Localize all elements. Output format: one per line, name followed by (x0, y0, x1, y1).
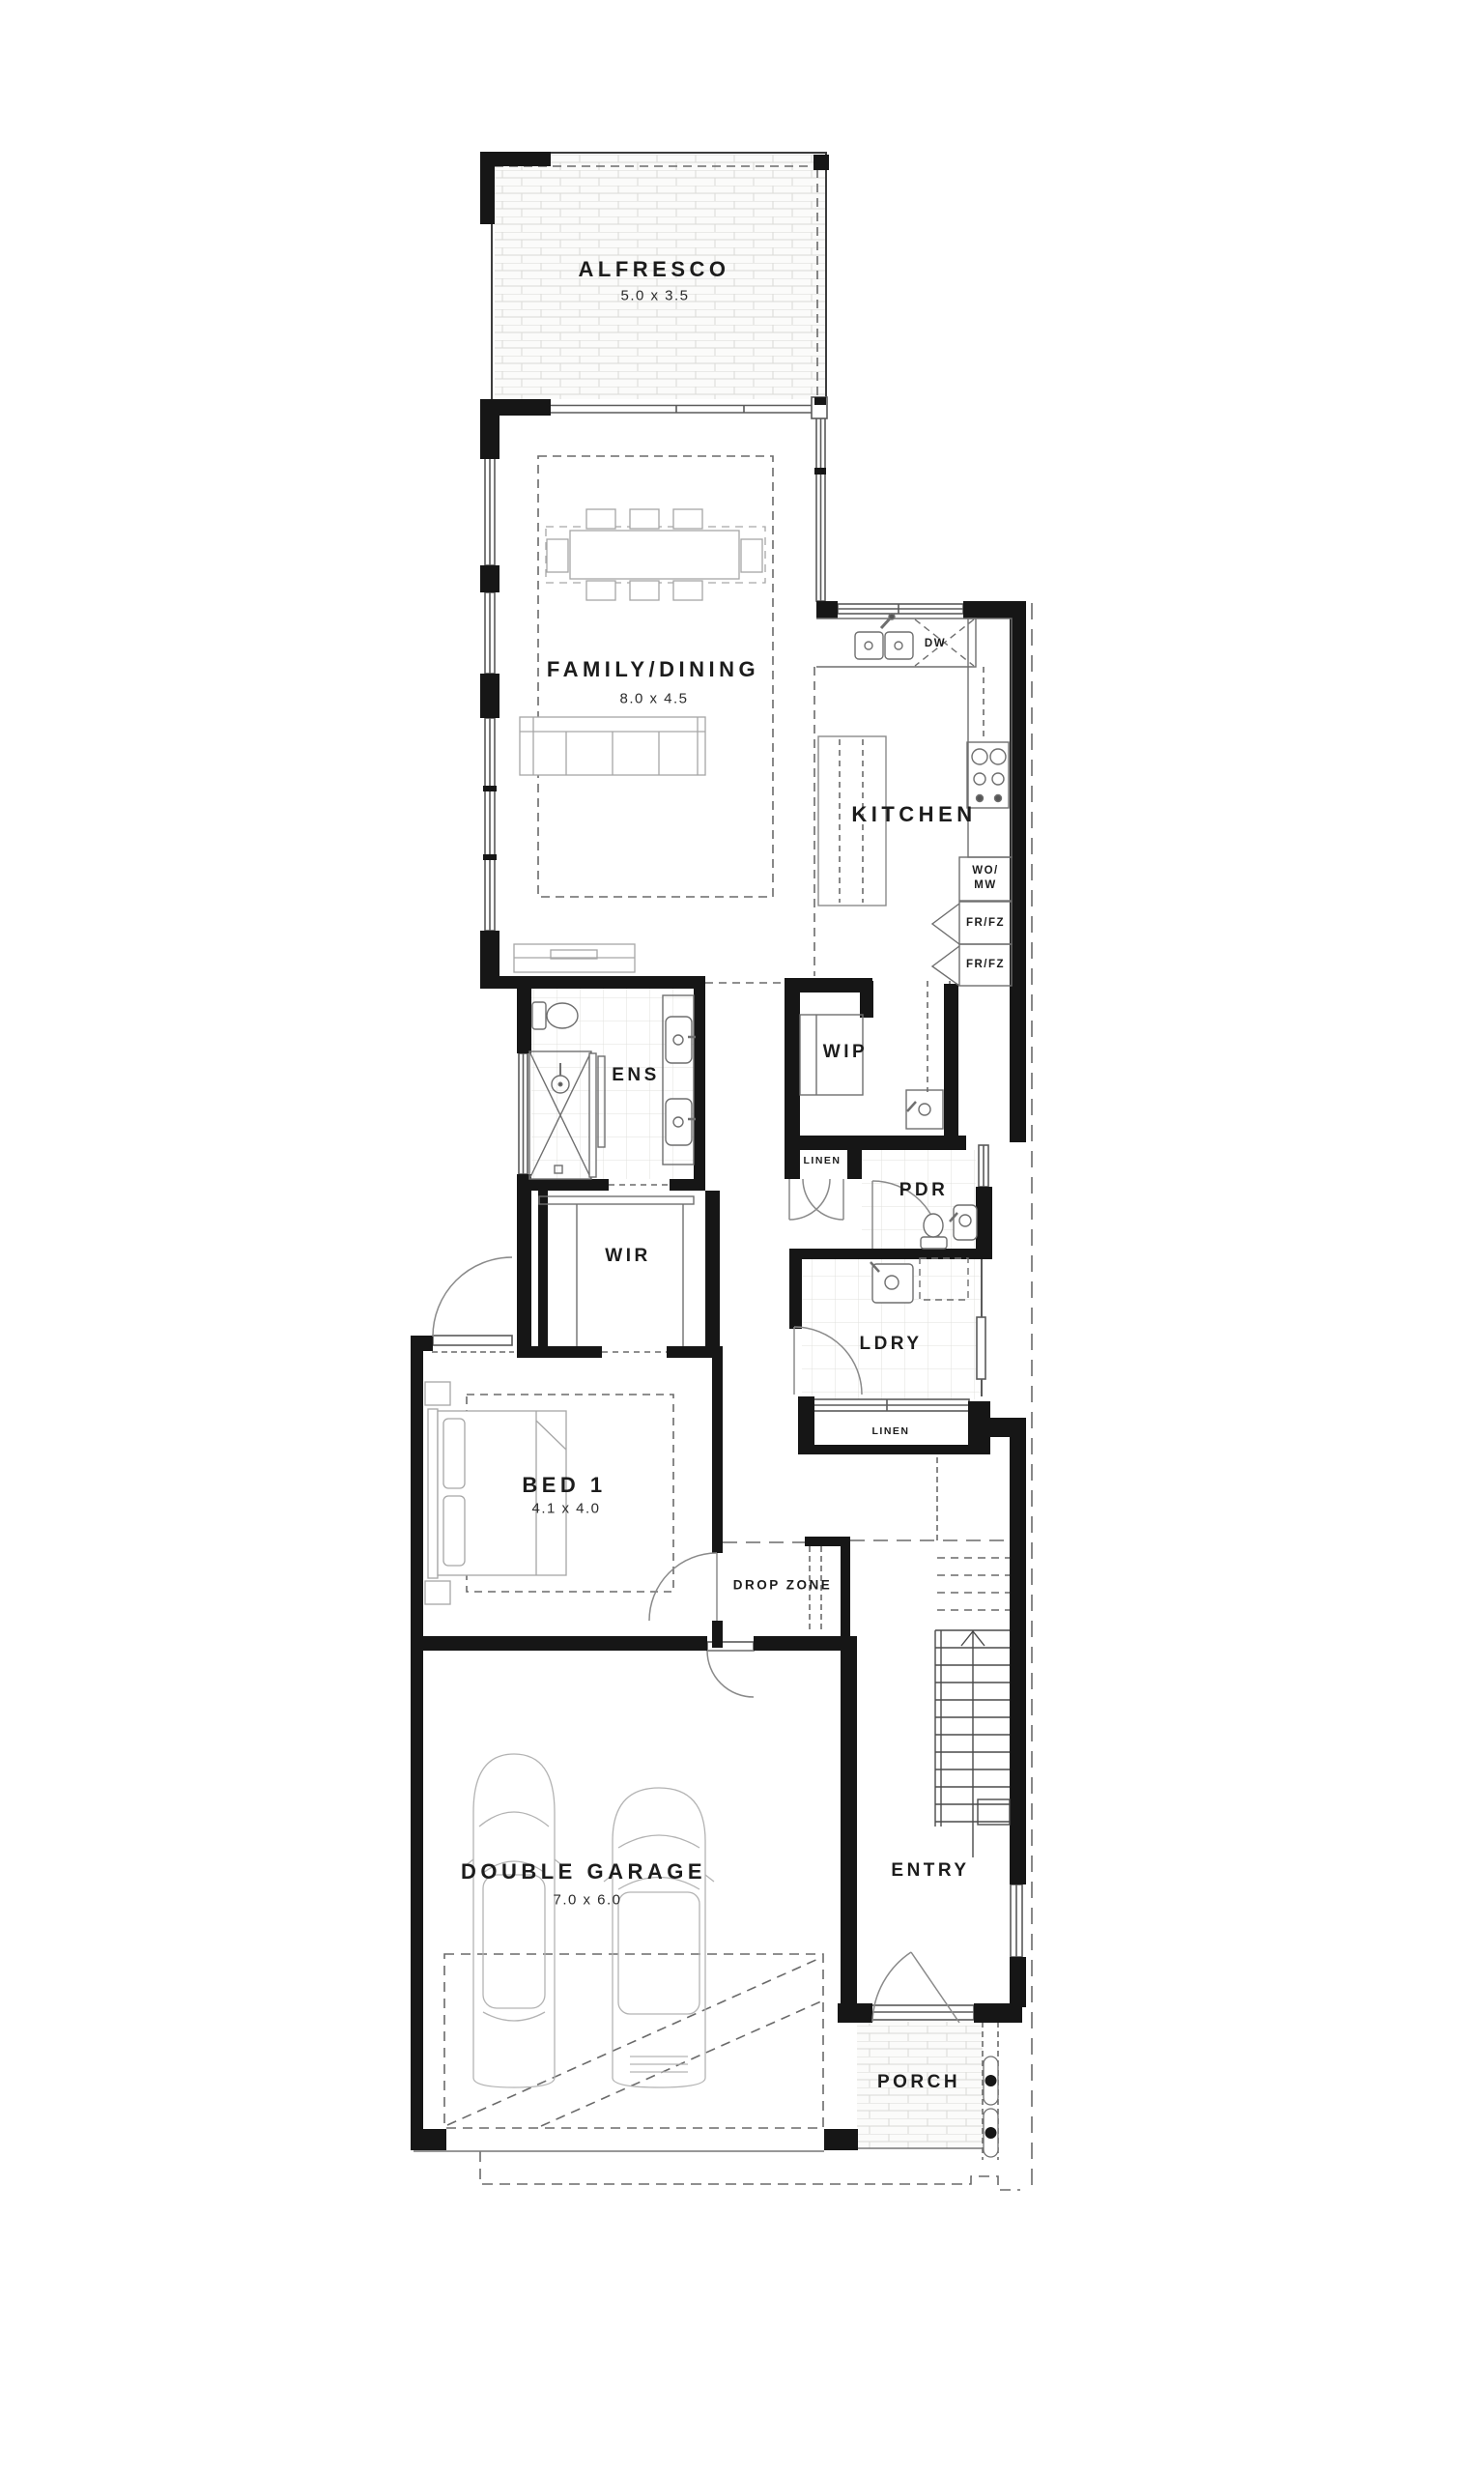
ldry-top-wall (789, 1249, 984, 1259)
room-label-porch: PORCH (877, 2072, 960, 2093)
family-left-window-1 (485, 457, 495, 565)
dining-setting (546, 509, 765, 600)
appliance-label-fridge-freezer-1: FR/FZ (966, 917, 1005, 929)
garage-bottom-right-corner (824, 2129, 858, 2150)
kitchen-corner-wall (816, 601, 838, 618)
family-left-window-3 (485, 718, 495, 931)
ens-left-wall-upper (517, 989, 531, 1053)
bed1-door (649, 1553, 717, 1621)
side-door-sill (433, 1336, 512, 1345)
bedside-table-2 (425, 1581, 450, 1604)
family-left-pier-3 (480, 674, 499, 718)
stair-upper-treads-dash (937, 1558, 1010, 1610)
pdr-right-wall (976, 1187, 992, 1259)
linen-upper-right-jamb (847, 1150, 862, 1179)
ens-toilet (532, 1002, 578, 1029)
sofa (520, 717, 705, 775)
ldry-linen-slider (805, 1399, 969, 1411)
entry-window (1011, 1884, 1022, 1957)
fridge-door-swing (932, 904, 959, 986)
entry-bottom-right-wall (974, 2003, 1022, 2023)
window-tick-2 (814, 468, 826, 475)
window-tick-1 (814, 397, 826, 405)
appliance-label-fridge-freezer-2: FR/FZ (966, 959, 1005, 970)
kitchen-sink (855, 614, 913, 659)
bed1-side-door (433, 1257, 512, 1337)
room-label-alfresco: ALFRESCO (579, 257, 730, 282)
wir-left-wall (517, 1191, 531, 1356)
room-label-kitchen: KITCHEN (851, 802, 976, 827)
floor-plan-drawing (0, 0, 1484, 2474)
ens-top-wall (480, 976, 705, 989)
stair-newel (978, 1799, 1010, 1825)
appliance-label-dishwasher: DW (925, 638, 946, 649)
pdr-window (979, 1145, 988, 1187)
stair-cut-line (723, 1540, 1010, 1542)
room-label-wir: WIR (605, 1246, 650, 1267)
garage-diagonal-dash (447, 1958, 823, 2126)
room-label-family-dining: FAMILY/DINING (547, 657, 759, 682)
wip-right-wall (944, 984, 958, 1142)
wip-left-wall (785, 978, 800, 1142)
wir-inner-wall (538, 1191, 548, 1346)
right-wall-lower (1010, 1957, 1026, 2007)
right-wall-step (990, 1418, 1026, 1437)
wip-stub-wall (860, 981, 873, 1018)
porch-pillars (984, 2057, 998, 2157)
room-label-linen-lower: LINEN (872, 1425, 910, 1437)
garage-bottom-left-corner (411, 2129, 446, 2150)
ens-bottom-wall-right (670, 1179, 705, 1191)
car-1 (465, 1754, 563, 2087)
linen-upper-left-jamb (785, 1142, 800, 1179)
left-wall-lower (411, 1346, 423, 2148)
room-dims-bed1: 4.1 x 4.0 (531, 1501, 600, 1517)
room-label-ens: ENS (612, 1065, 660, 1086)
linen-lower-right-wall (968, 1401, 990, 1454)
linen-lower-bottom-wall (805, 1445, 973, 1454)
wip-top-wall (785, 978, 872, 992)
stair-rail (935, 1630, 941, 1827)
family-right-window (816, 399, 825, 601)
bed1-right-wall-upper (712, 1356, 723, 1553)
wir-shelving (539, 1196, 694, 1346)
wir-bottom-wall-left (517, 1346, 602, 1358)
garage-entry-divider-wall (841, 1648, 857, 2023)
room-label-drop-zone: DROP ZONE (733, 1578, 833, 1593)
floor-plan-canvas: ALFRESCO 5.0 x 3.5 FAMILY/DINING 8.0 x 4… (0, 0, 1484, 2474)
room-dims-double-garage: 7.0 x 6.0 (553, 1892, 621, 1909)
ens-bottom-wall-left (517, 1179, 609, 1191)
car-2 (604, 1788, 714, 2087)
linen-upper-doors (789, 1179, 843, 1220)
family-left-pier-1 (480, 399, 499, 459)
kitchen-window (838, 604, 963, 614)
site-boundary-dash (480, 2151, 1020, 2190)
room-dims-alfresco: 5.0 x 3.5 (620, 288, 689, 304)
bedside-table-1 (425, 1382, 450, 1405)
paved-areas (495, 155, 983, 2148)
room-label-wip: WIP (823, 1042, 868, 1063)
alfresco-sliding-door (551, 397, 827, 418)
alfresco-left-wall (480, 152, 495, 224)
drop-zone-cabinet-side (841, 1537, 850, 1638)
room-label-double-garage: DOUBLE GARAGE (461, 1859, 706, 1884)
appliance-label-wall-oven-microwave: WO/ MW (972, 864, 999, 893)
ldry-left-wall (789, 1249, 802, 1329)
room-label-entry: ENTRY (891, 1860, 969, 1882)
garage-internal-door (707, 1651, 754, 1697)
window-mullion-1 (483, 786, 497, 791)
room-label-ldry: LDRY (859, 1334, 922, 1355)
wip-bench (800, 1015, 943, 1129)
right-wall-mid (1010, 1437, 1026, 1884)
slab-lines (414, 2148, 983, 2151)
bed1-right-wall-lower (712, 1621, 723, 1648)
stairs (935, 1630, 1010, 1857)
room-label-bed1: BED 1 (522, 1473, 606, 1498)
garage-top-wall-left (411, 1636, 707, 1651)
room-label-pdr: PDR (899, 1180, 949, 1201)
family-left-window-2 (485, 592, 495, 674)
family-left-pier-2 (480, 565, 499, 592)
ens-right-wall (694, 976, 705, 1191)
tv-unit (514, 944, 635, 972)
room-dims-family-dining: 8.0 x 4.5 (619, 691, 688, 707)
alfresco-post (813, 155, 829, 170)
cooktop (967, 742, 1009, 808)
window-mullion-2 (483, 854, 497, 860)
room-label-linen-upper: LINEN (804, 1155, 842, 1166)
wip-bottom-wall (785, 1136, 966, 1150)
wir-right-wall (705, 1191, 720, 1356)
ens-window (519, 1053, 528, 1174)
